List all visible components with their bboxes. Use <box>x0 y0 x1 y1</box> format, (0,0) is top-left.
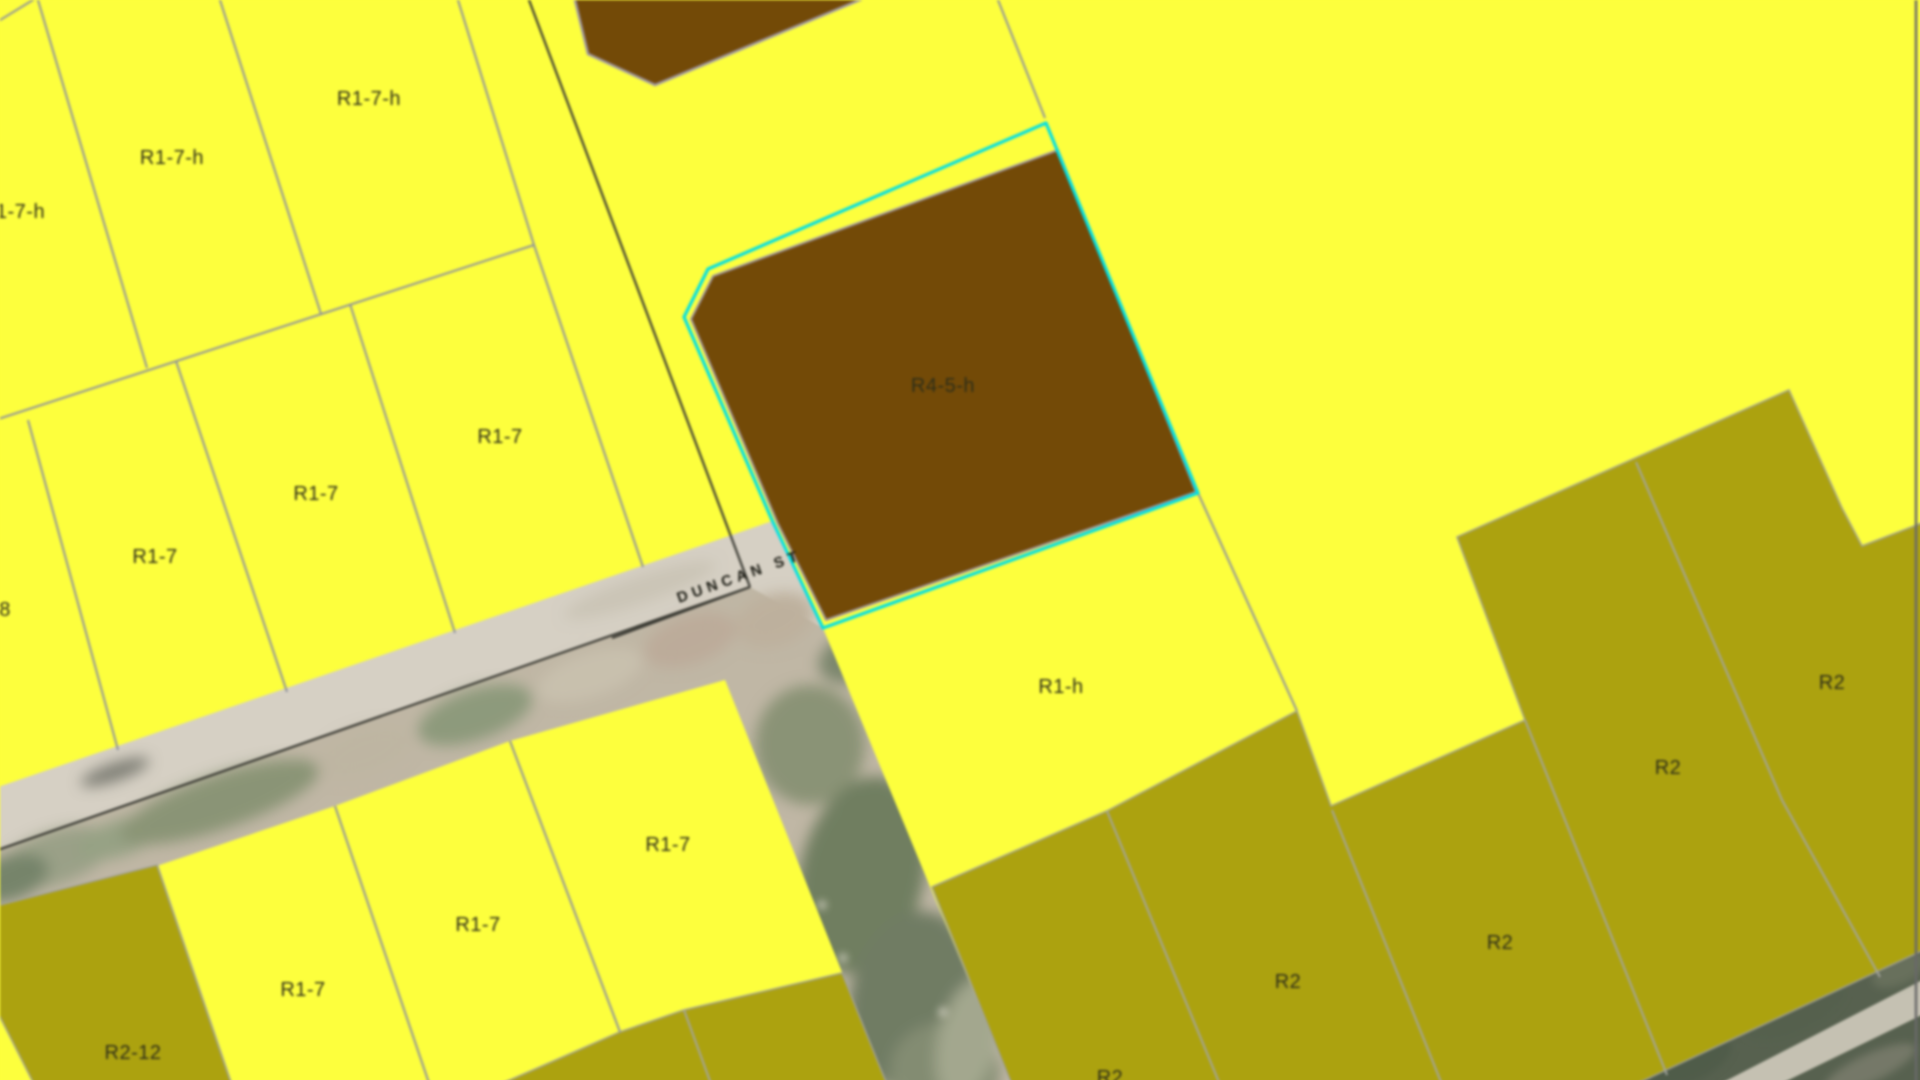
svg-text:R2: R2 <box>1097 1067 1124 1080</box>
svg-text:R2-12: R2-12 <box>105 1042 162 1064</box>
svg-text:R1-7: R1-7 <box>293 483 338 505</box>
svg-text:R1-7: R1-7 <box>132 546 177 568</box>
svg-text:R4-5-h: R4-5-h <box>911 375 975 397</box>
svg-text:R1-7: R1-7 <box>645 834 690 856</box>
svg-text:R2: R2 <box>1655 757 1682 779</box>
svg-text:R2: R2 <box>1487 932 1514 954</box>
svg-text:R2: R2 <box>1819 672 1846 694</box>
svg-text:R2: R2 <box>1275 971 1302 993</box>
svg-text:R1-7-h: R1-7-h <box>0 201 45 223</box>
svg-text:R1-7: R1-7 <box>455 914 500 936</box>
svg-text:R1-h: R1-h <box>1038 676 1083 698</box>
svg-text:R1-7-h: R1-7-h <box>337 88 401 110</box>
svg-text:R1-7: R1-7 <box>280 979 325 1001</box>
svg-text:8: 8 <box>0 599 11 621</box>
svg-text:R1-7: R1-7 <box>477 426 522 448</box>
svg-text:R1-7-h: R1-7-h <box>140 147 204 169</box>
